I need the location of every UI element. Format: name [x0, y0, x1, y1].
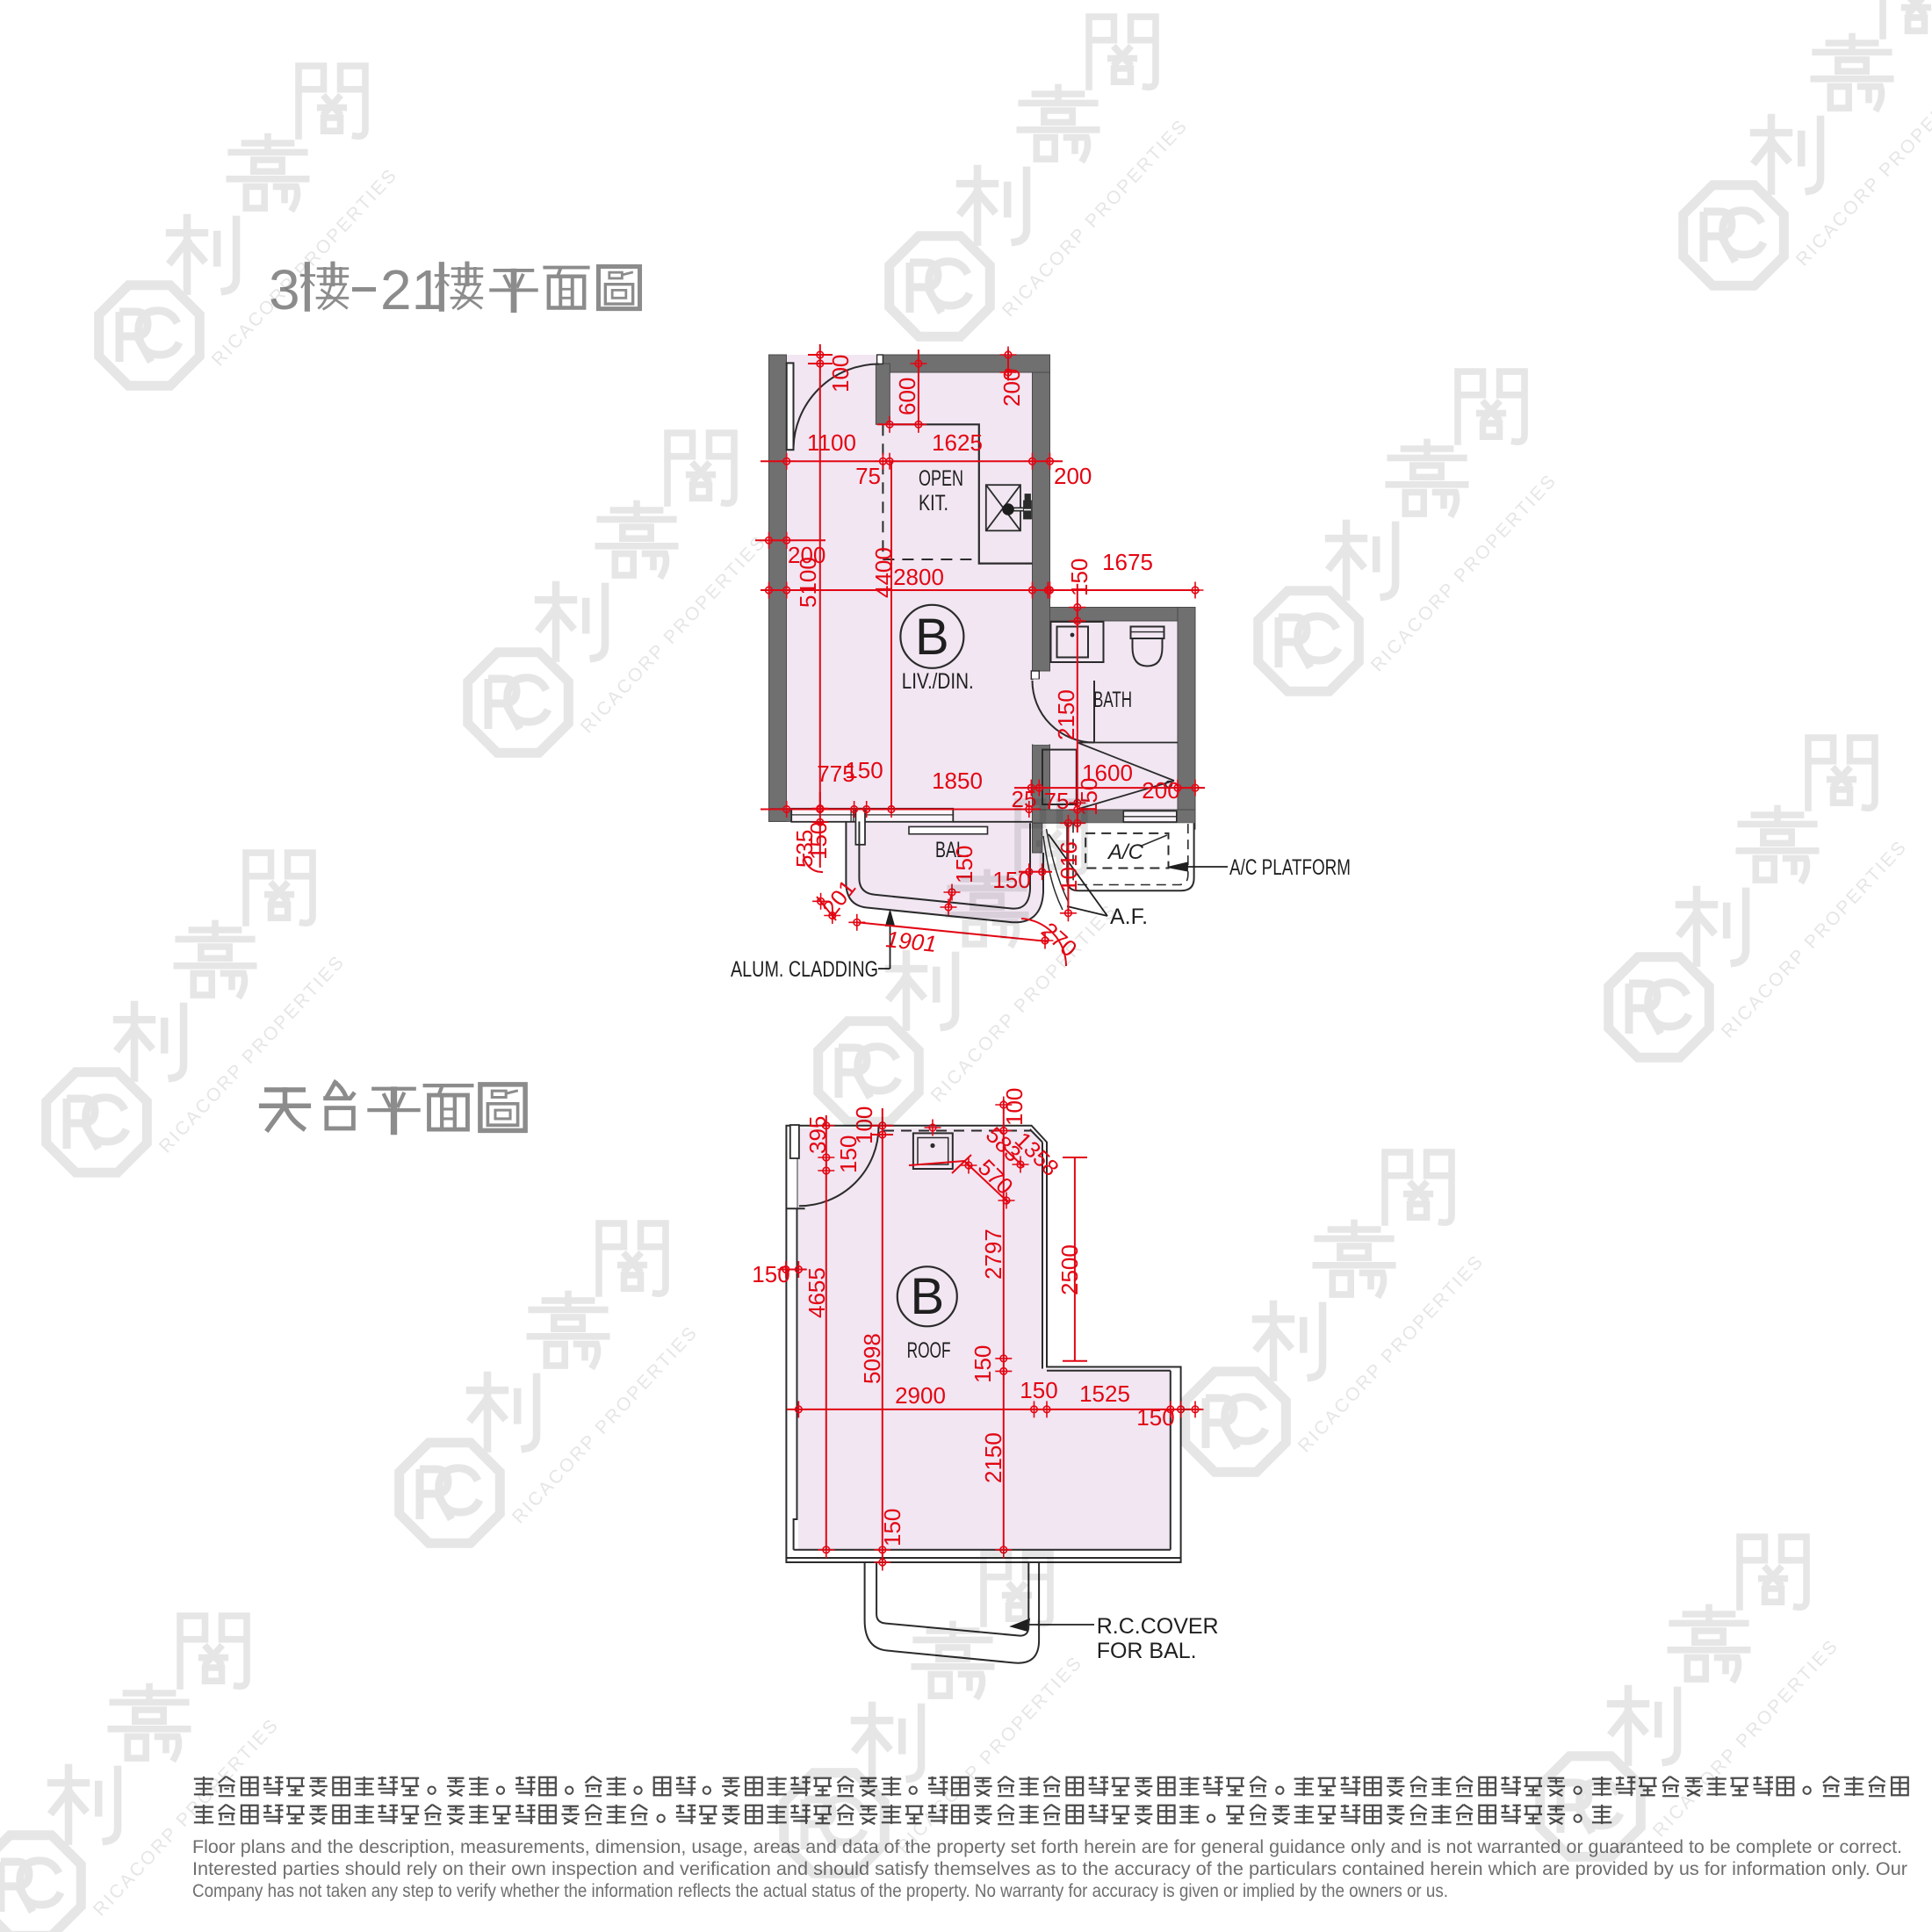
- svg-text:2150: 2150: [980, 1432, 1006, 1483]
- svg-text:150: 150: [970, 1345, 996, 1383]
- svg-text:21: 21: [380, 258, 443, 321]
- svg-text:5098: 5098: [859, 1333, 885, 1384]
- svg-text:BATH: BATH: [1093, 688, 1132, 712]
- svg-text:100: 100: [827, 355, 854, 393]
- svg-text:OPEN: OPEN: [919, 466, 963, 491]
- svg-text:1850: 1850: [932, 768, 983, 794]
- svg-text:600: 600: [894, 378, 920, 415]
- svg-text:200: 200: [1142, 777, 1179, 804]
- svg-text:2800: 2800: [893, 564, 944, 590]
- svg-text:Interested parties should rely: Interested parties should rely on their …: [192, 1858, 1907, 1879]
- svg-text:150: 150: [752, 1261, 789, 1287]
- svg-text:ALUM. CLADDING: ALUM. CLADDING: [731, 957, 878, 982]
- svg-text:200: 200: [998, 369, 1025, 407]
- svg-text:KIT.: KIT.: [919, 491, 948, 515]
- svg-text:150: 150: [1076, 778, 1102, 816]
- svg-text:ROOF: ROOF: [907, 1338, 951, 1363]
- svg-text:Floor plans and the descriptio: Floor plans and the description, measure…: [192, 1836, 1902, 1857]
- svg-text:4655: 4655: [804, 1267, 830, 1318]
- svg-text:200: 200: [788, 542, 825, 568]
- svg-text:2500: 2500: [1056, 1244, 1083, 1295]
- svg-text:1625: 1625: [932, 429, 983, 456]
- svg-text:75: 75: [855, 463, 881, 489]
- svg-text:4400: 4400: [870, 547, 897, 598]
- svg-text:A/C PLATFORM: A/C PLATFORM: [1229, 855, 1351, 880]
- svg-text:Company has not taken any step: Company has not taken any step to verify…: [192, 1880, 1448, 1901]
- svg-text:150: 150: [1066, 559, 1092, 596]
- svg-text:A/C: A/C: [1107, 840, 1144, 864]
- svg-text:B: B: [915, 609, 949, 666]
- svg-text:150: 150: [879, 1509, 905, 1546]
- svg-text:1675: 1675: [1102, 549, 1153, 575]
- svg-text:100: 100: [1001, 1088, 1027, 1126]
- svg-text:R.C.COVER: R.C.COVER: [1097, 1614, 1219, 1639]
- svg-text:150: 150: [1136, 1404, 1174, 1431]
- svg-text:200: 200: [1054, 463, 1092, 489]
- svg-text:B: B: [910, 1268, 944, 1325]
- svg-text:1901: 1901: [884, 926, 938, 957]
- svg-text:150: 150: [805, 822, 832, 860]
- svg-text:LIV./DIN.: LIV./DIN.: [902, 669, 974, 694]
- svg-text:2797: 2797: [980, 1229, 1006, 1280]
- svg-text:2150: 2150: [1053, 689, 1079, 740]
- svg-text:1100: 1100: [807, 429, 856, 456]
- svg-text:395: 395: [804, 1116, 831, 1154]
- svg-text:2900: 2900: [895, 1382, 946, 1409]
- svg-text:1525: 1525: [1079, 1381, 1130, 1407]
- svg-text:150: 150: [845, 757, 883, 783]
- svg-text:150: 150: [1020, 1377, 1057, 1403]
- svg-text:FOR BAL.: FOR BAL.: [1097, 1639, 1197, 1663]
